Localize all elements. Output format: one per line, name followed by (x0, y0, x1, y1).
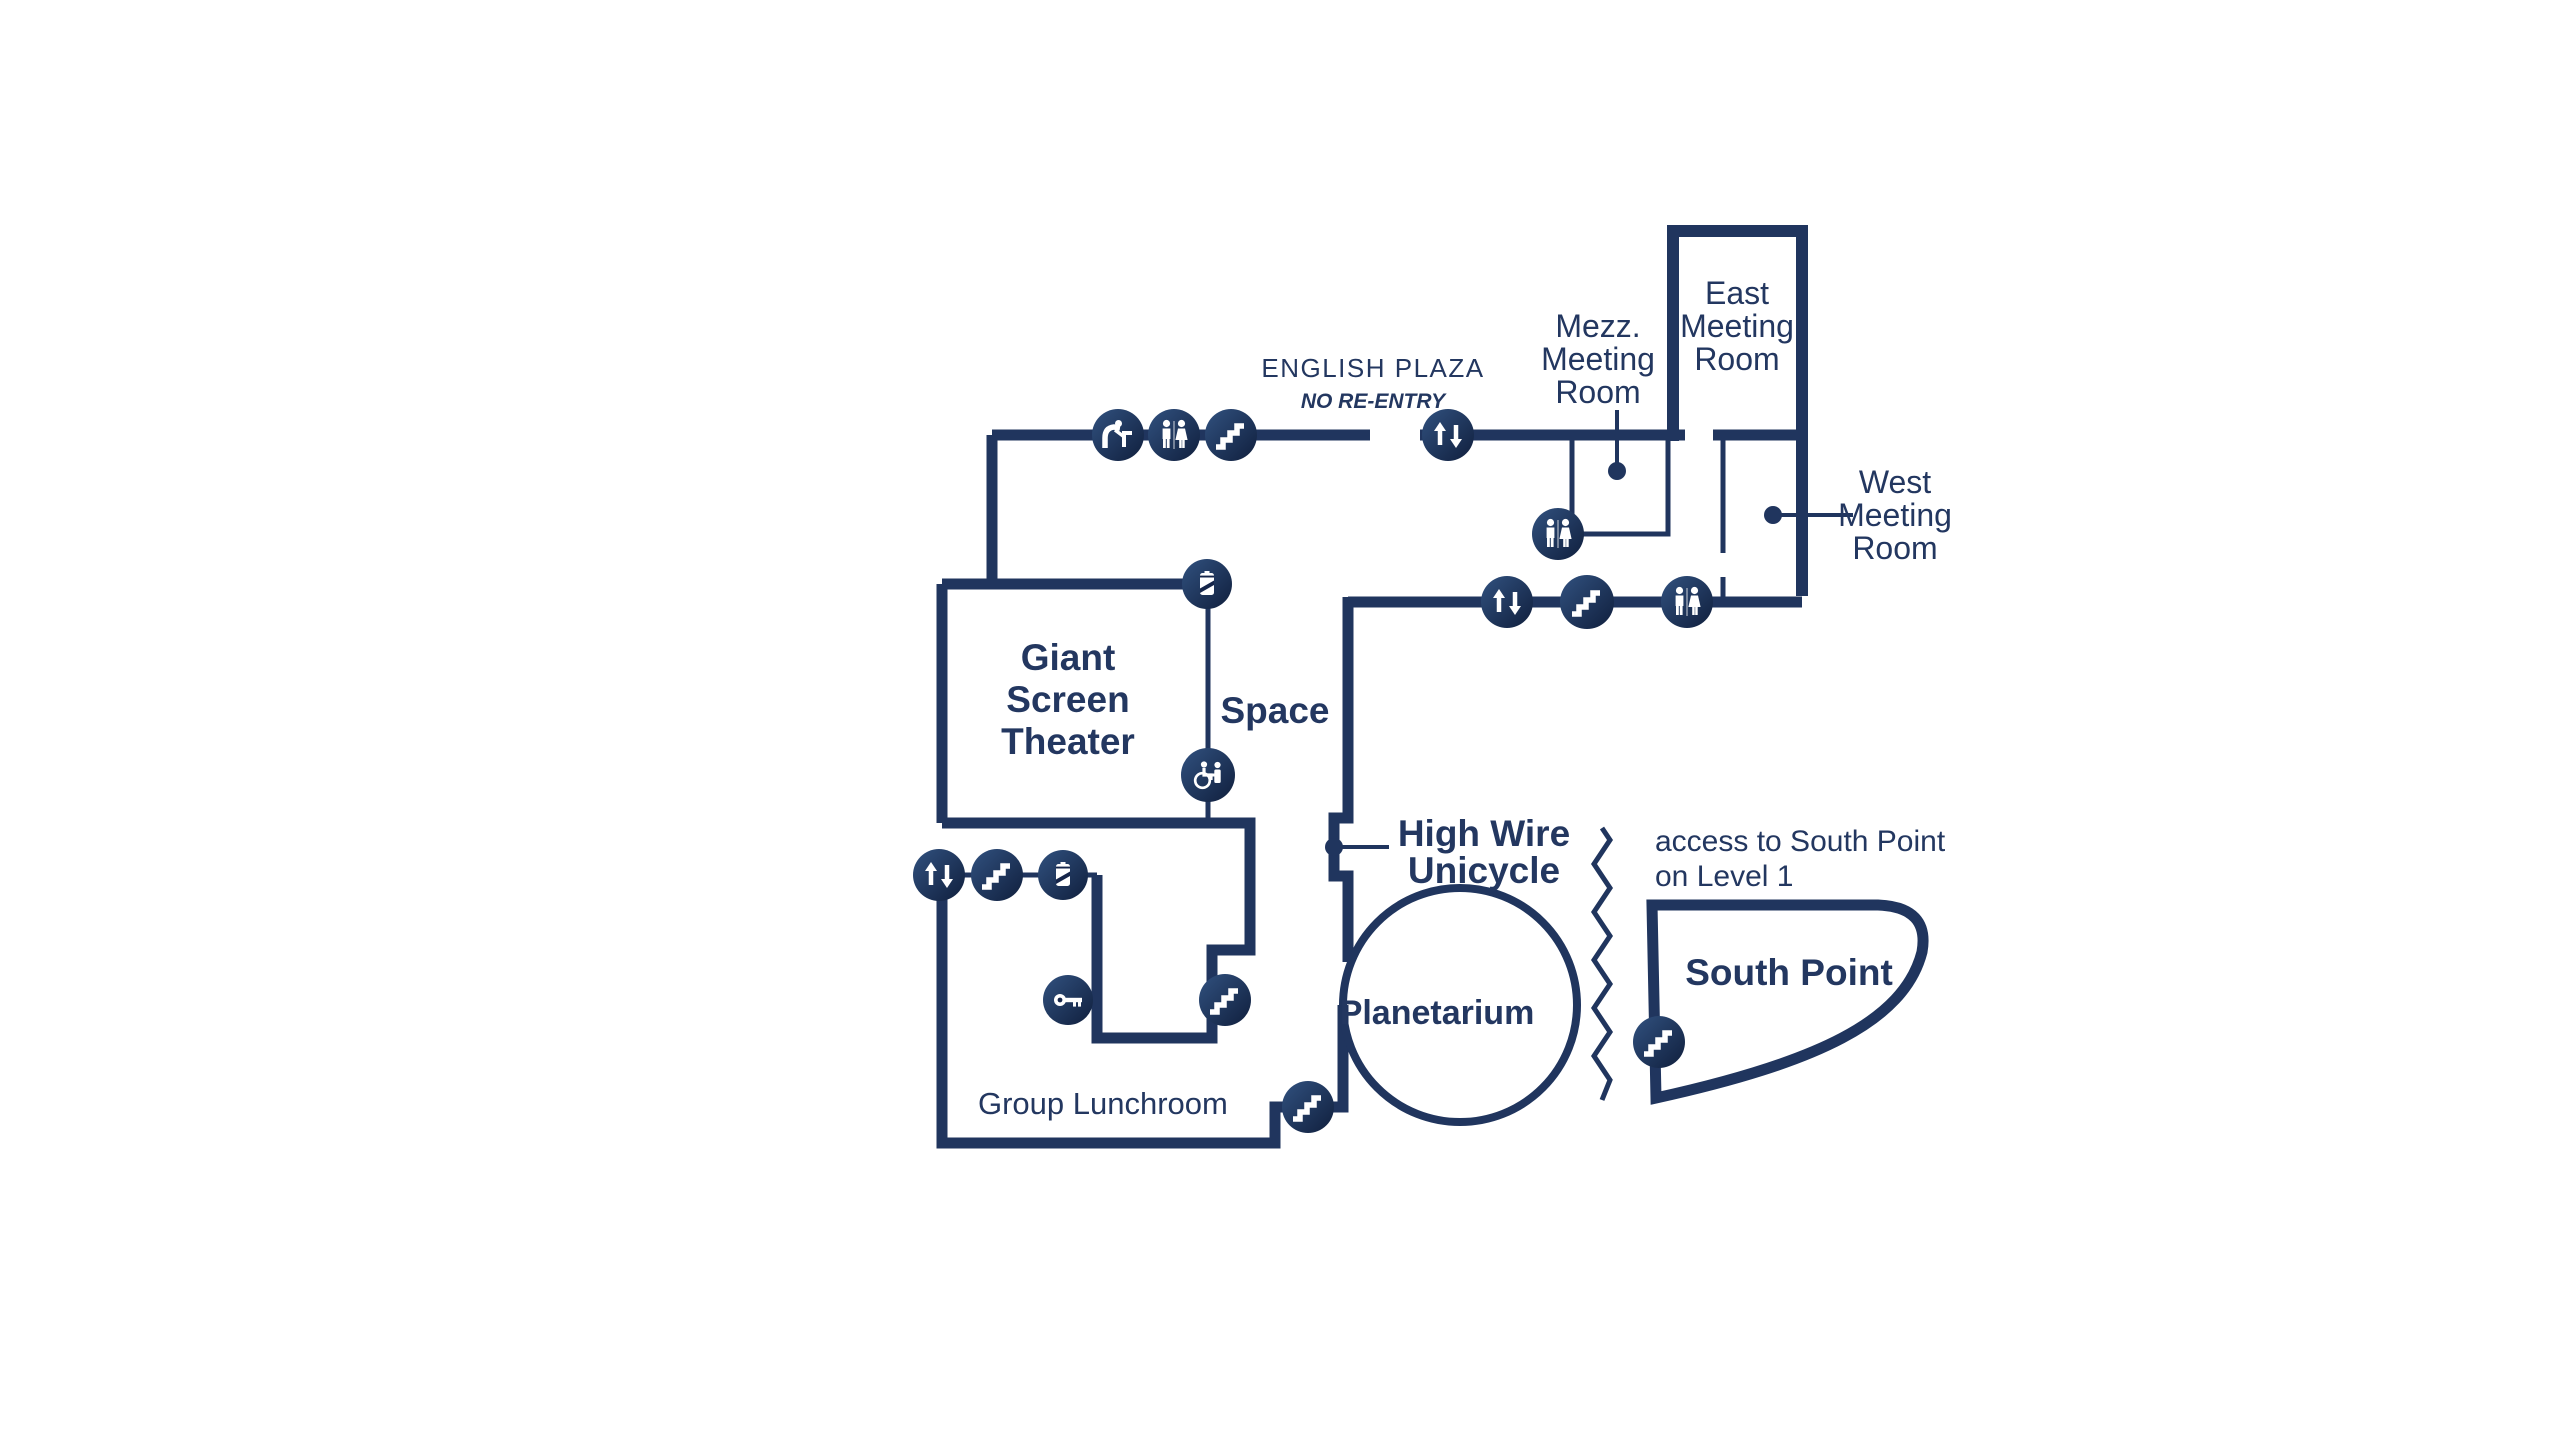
restroom-icon (1661, 576, 1713, 628)
svg-text:Room: Room (1555, 374, 1640, 410)
interior-thin-walls (1208, 435, 1723, 823)
vending-icon (1038, 850, 1088, 900)
svg-text:Room: Room (1852, 530, 1937, 566)
space-corridor-wall (1334, 597, 1348, 962)
west-leader-dot (1764, 506, 1782, 524)
east-meeting-room-label: East Meeting Room (1680, 275, 1794, 377)
stairs-icon (1282, 1081, 1334, 1133)
svg-text:East: East (1705, 275, 1769, 311)
restroom-icon (1148, 409, 1200, 461)
svg-text:on Level 1: on Level 1 (1655, 860, 1793, 893)
access-note-label: access to South Point on Level 1 (1655, 825, 1946, 893)
drinking-fountain-icon (1092, 409, 1144, 461)
vending-icon (1182, 559, 1232, 609)
group-lunchroom-label: Group Lunchroom (978, 1086, 1228, 1121)
amenity-icons (913, 409, 1713, 1133)
svg-text:High Wire: High Wire (1398, 813, 1570, 854)
restroom-icon (1532, 508, 1584, 560)
high-wire-unicycle-label: High Wire Unicycle (1398, 813, 1570, 891)
stairs-icon (971, 849, 1023, 901)
svg-text:West: West (1859, 464, 1931, 500)
stairs-icon (1199, 974, 1251, 1026)
no-reentry-label: NO RE-ENTRY (1301, 390, 1447, 413)
south-point-label: South Point (1685, 952, 1893, 993)
svg-text:Room: Room (1694, 341, 1779, 377)
svg-text:Mezz.: Mezz. (1555, 308, 1640, 344)
elevator-icon (1481, 576, 1533, 628)
space-label: Space (1220, 690, 1329, 731)
mezz-leader-dot (1608, 462, 1626, 480)
south-point-outline (1652, 905, 1923, 1098)
elevator-icon (913, 849, 965, 901)
svg-text:Meeting: Meeting (1541, 341, 1655, 377)
west-meeting-room-label: West Meeting Room (1838, 464, 1952, 566)
svg-text:Giant: Giant (1021, 637, 1116, 678)
giant-screen-theater-label: Giant Screen Theater (1001, 637, 1135, 762)
mezz-meeting-room-label: Mezz. Meeting Room (1541, 308, 1655, 410)
svg-text:Theater: Theater (1001, 721, 1135, 762)
svg-text:access to South Point: access to South Point (1655, 825, 1946, 858)
key-lockers-icon (1043, 975, 1093, 1025)
svg-text:Unicycle: Unicycle (1408, 850, 1560, 891)
svg-text:Meeting: Meeting (1680, 308, 1794, 344)
leader-lines (1325, 410, 1853, 856)
accessible-family-restroom-icon (1181, 748, 1235, 802)
english-plaza-label: ENGLISH PLAZA (1261, 353, 1484, 383)
floor-map: ENGLISH PLAZA NO RE-ENTRY Mezz. Meeting … (0, 0, 2560, 1440)
stairs-icon (1205, 409, 1257, 461)
svg-text:Meeting: Meeting (1838, 497, 1952, 533)
elevator-icon (1422, 409, 1474, 461)
zigzag-divider (1594, 828, 1610, 1100)
stairs-icon (1633, 1016, 1685, 1068)
stairs-icon (1560, 575, 1614, 629)
svg-text:Screen: Screen (1006, 679, 1129, 720)
highwire-leader-dot (1325, 838, 1343, 856)
planetarium-label: Planetarium (1340, 994, 1535, 1032)
